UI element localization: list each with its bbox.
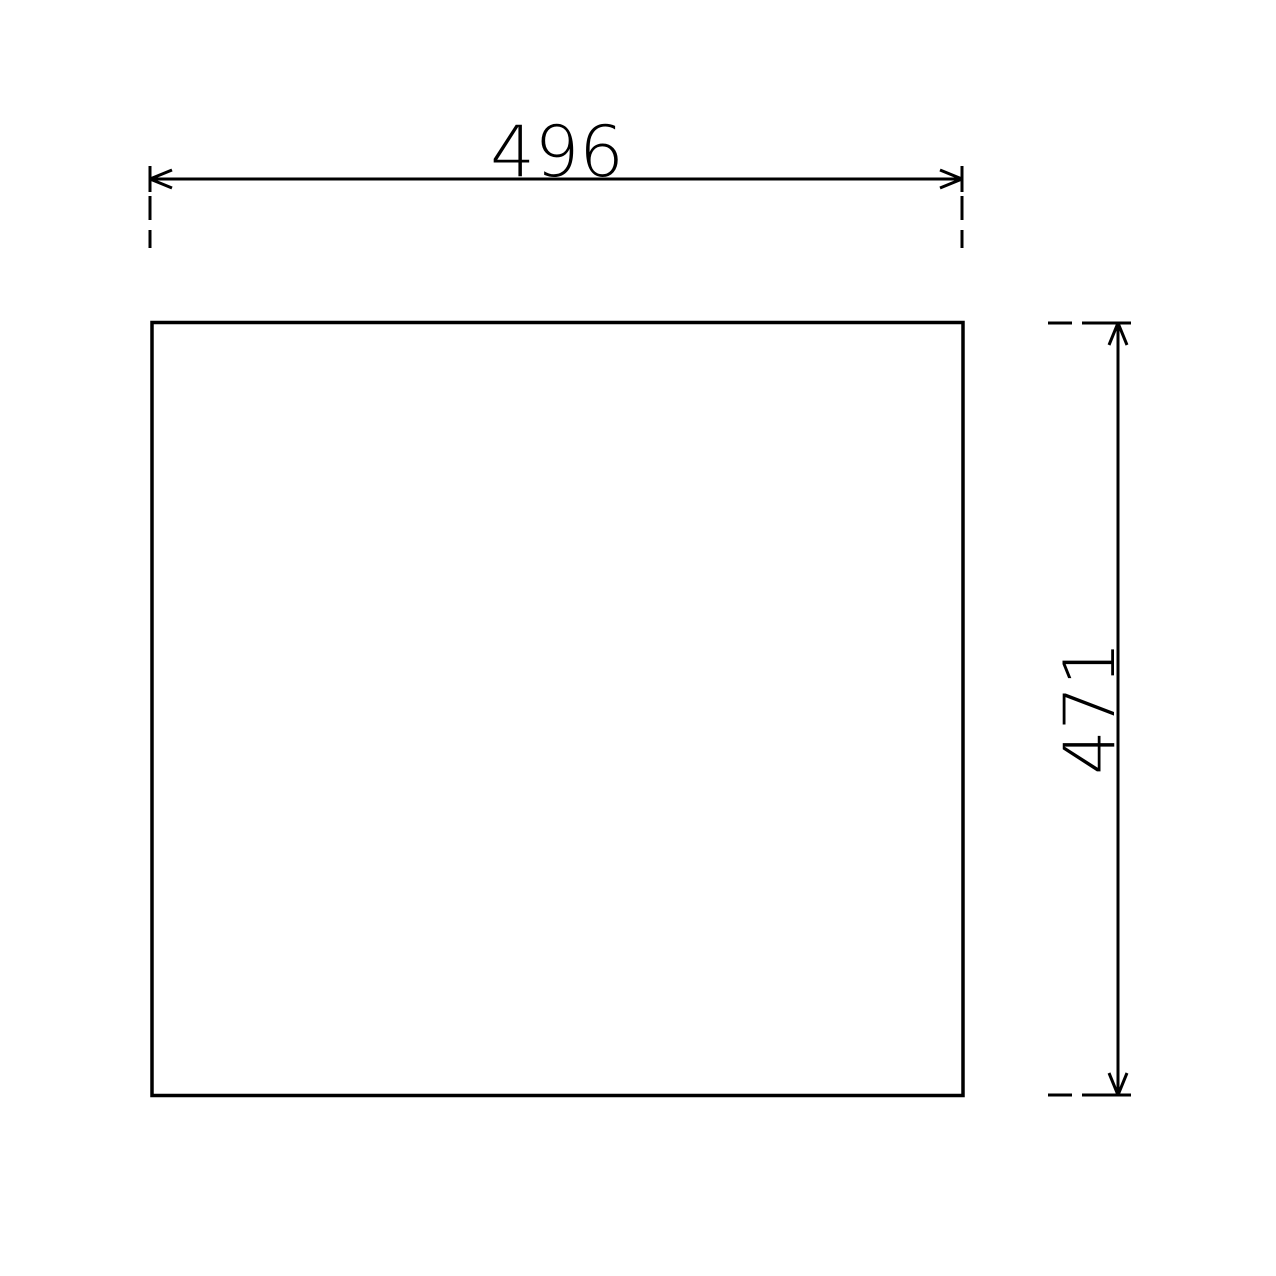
part-outline bbox=[152, 323, 963, 1096]
height-dimension: 471 bbox=[1048, 323, 1131, 1095]
width-dimension-label: 496 bbox=[490, 111, 624, 193]
technical-drawing-canvas: 496 471 bbox=[0, 0, 1276, 1276]
dimension-drawing: 496 471 bbox=[0, 0, 1276, 1276]
height-dimension-label: 471 bbox=[1049, 641, 1131, 775]
width-dimension: 496 bbox=[150, 111, 962, 248]
